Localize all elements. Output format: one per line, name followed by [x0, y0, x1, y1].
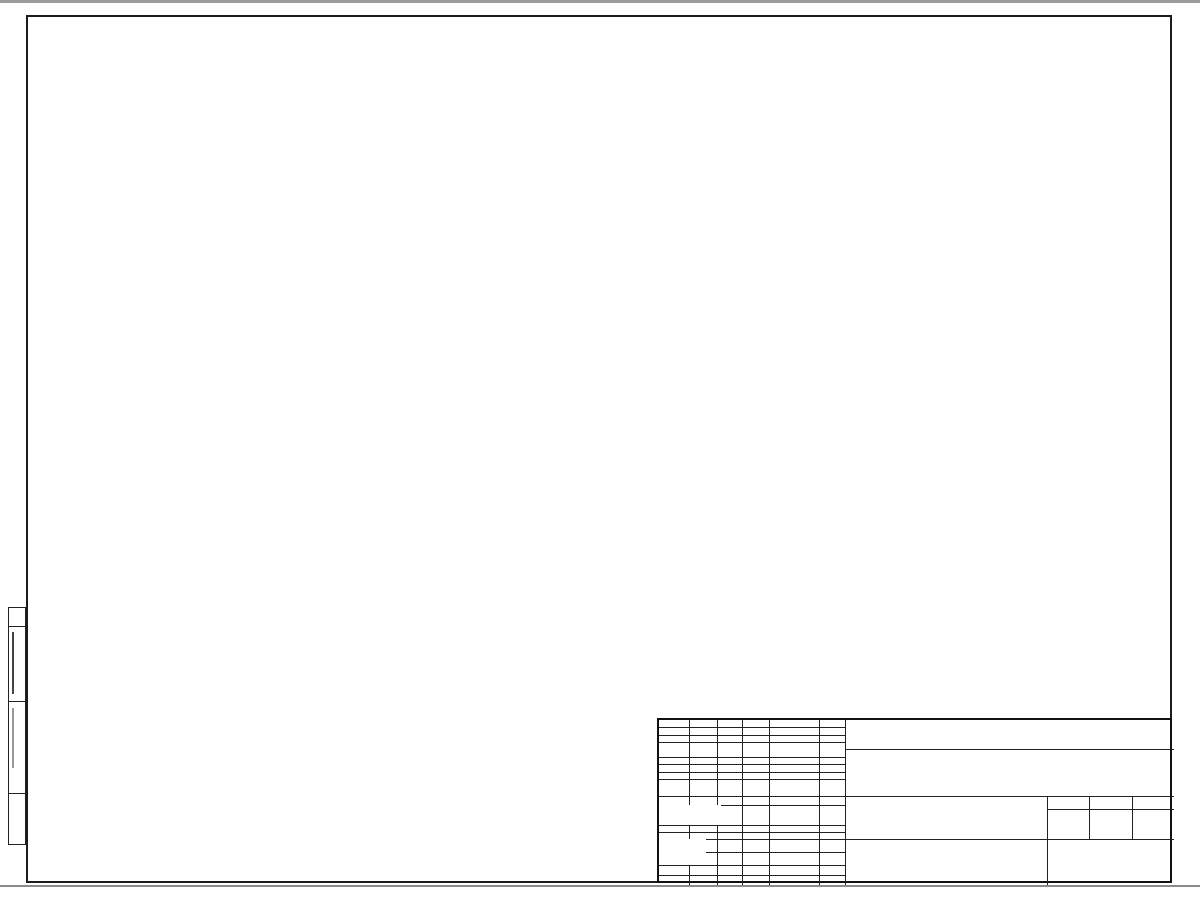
sheet [0, 0, 1200, 900]
row-gip [659, 852, 706, 865]
title-block [657, 718, 1172, 883]
sheet-number [1089, 809, 1132, 839]
col-list [717, 779, 742, 796]
contractor [1047, 839, 1174, 885]
sheet-label [1089, 796, 1132, 809]
row-nkontr [659, 839, 706, 852]
sheet-title [845, 839, 1047, 885]
row-razrabotal [659, 805, 721, 825]
col-podpis [769, 779, 819, 796]
sheets-total [1132, 809, 1174, 839]
project-name [845, 749, 1174, 796]
sheet-edge-bottom [0, 885, 1200, 887]
stage-label [1047, 796, 1089, 809]
sheets-label [1132, 796, 1174, 809]
col-dok [742, 779, 769, 796]
stage-value [1047, 809, 1089, 839]
col-data [819, 779, 845, 796]
col-izm [659, 779, 689, 796]
doc-number [845, 720, 1174, 749]
org-name [845, 796, 1047, 839]
col-kol [689, 779, 717, 796]
